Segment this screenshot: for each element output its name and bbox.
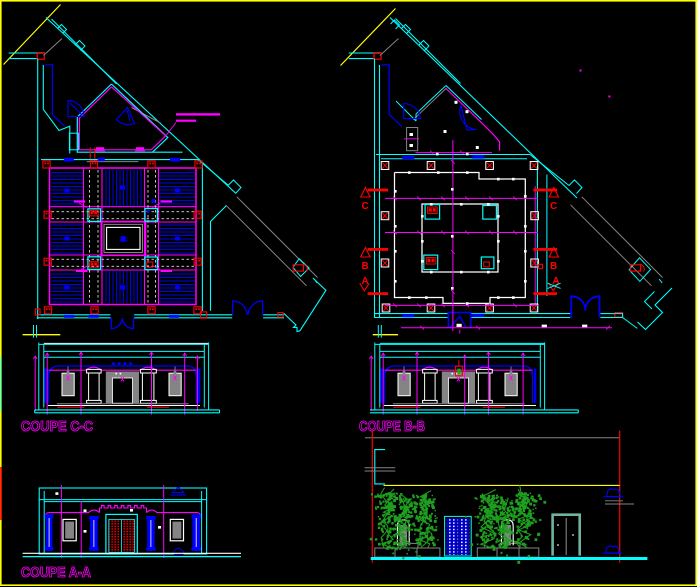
svg-text:COUPE C-C: COUPE C-C (21, 418, 93, 435)
svg-text:B: B (550, 261, 557, 272)
svg-text:COUPE B-B: COUPE B-B (359, 418, 425, 435)
svg-text:C: C (362, 201, 369, 212)
svg-text:B: B (362, 261, 369, 272)
svg-text:C: C (550, 201, 557, 212)
svg-text:COUPE A-A: COUPE A-A (21, 564, 91, 581)
